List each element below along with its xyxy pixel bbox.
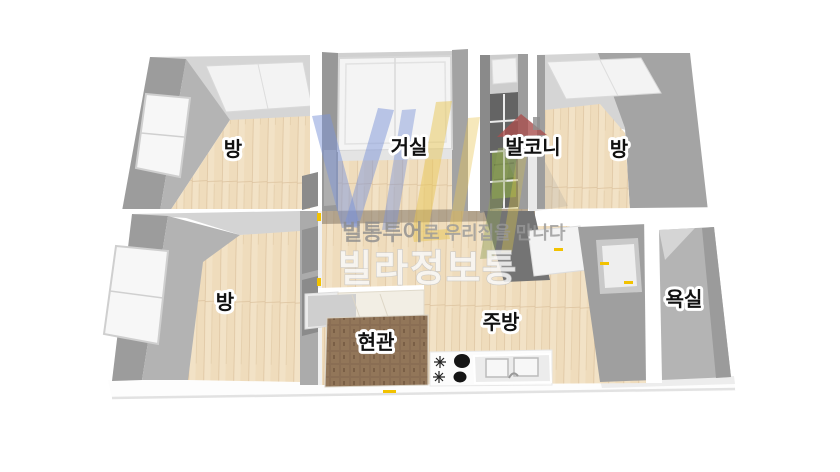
- room-bedroom-bottom-left: [104, 211, 300, 382]
- accent-dash-icon: [383, 390, 396, 393]
- label-bedroom-top-right: 방: [610, 138, 629, 161]
- label-bedroom-top-left: 방: [224, 138, 243, 161]
- watermark-tagline: 빌통투어로 우리집을 만나다: [342, 220, 566, 245]
- tagline-rest-part: 로 우리집을 만나다: [423, 223, 566, 243]
- floorplan-3d-render: 빌통투어로 우리집을 만나다 빌라정보통 방 거실 발코니 방 방 현관 주방 …: [0, 0, 840, 472]
- watermark-brand: 빌라정보통: [338, 248, 518, 289]
- label-bathroom: 욕실: [666, 288, 703, 311]
- accent-dash-icon: [624, 281, 633, 284]
- door-handle-icon: [317, 213, 321, 221]
- stove-burner-icon: [454, 354, 470, 368]
- door-middle: [302, 226, 318, 274]
- room-bedroom-top-right: [537, 53, 708, 211]
- accent-dash-icon: [554, 248, 563, 251]
- label-entrance: 현관: [358, 331, 395, 354]
- tagline-brand-part: 빌통투어: [342, 220, 423, 245]
- closet-top: [547, 58, 661, 99]
- house-chimney: [533, 117, 540, 130]
- accent-dash-icon: [600, 262, 609, 265]
- room-bedroom-top-left: [122, 55, 312, 211]
- stove-burner-icon: [454, 372, 467, 383]
- door-handle-icon: [317, 278, 321, 286]
- door-top: [302, 172, 318, 210]
- label-balcony: 발코니: [505, 136, 560, 159]
- left-wall: [480, 55, 490, 213]
- kitchen-counter: [430, 350, 552, 386]
- sink-basin: [514, 358, 538, 376]
- floorplan-canvas: 빌통투어로 우리집을 만나다 빌라정보통 방 거실 발코니 방 방 현관 주방 …: [0, 0, 840, 472]
- label-kitchen: 주방: [483, 311, 520, 334]
- sink-basin: [486, 359, 508, 377]
- closet-top: [492, 58, 517, 84]
- label-bedroom-bottom-left: 방: [216, 291, 235, 314]
- label-living-room: 거실: [391, 136, 428, 159]
